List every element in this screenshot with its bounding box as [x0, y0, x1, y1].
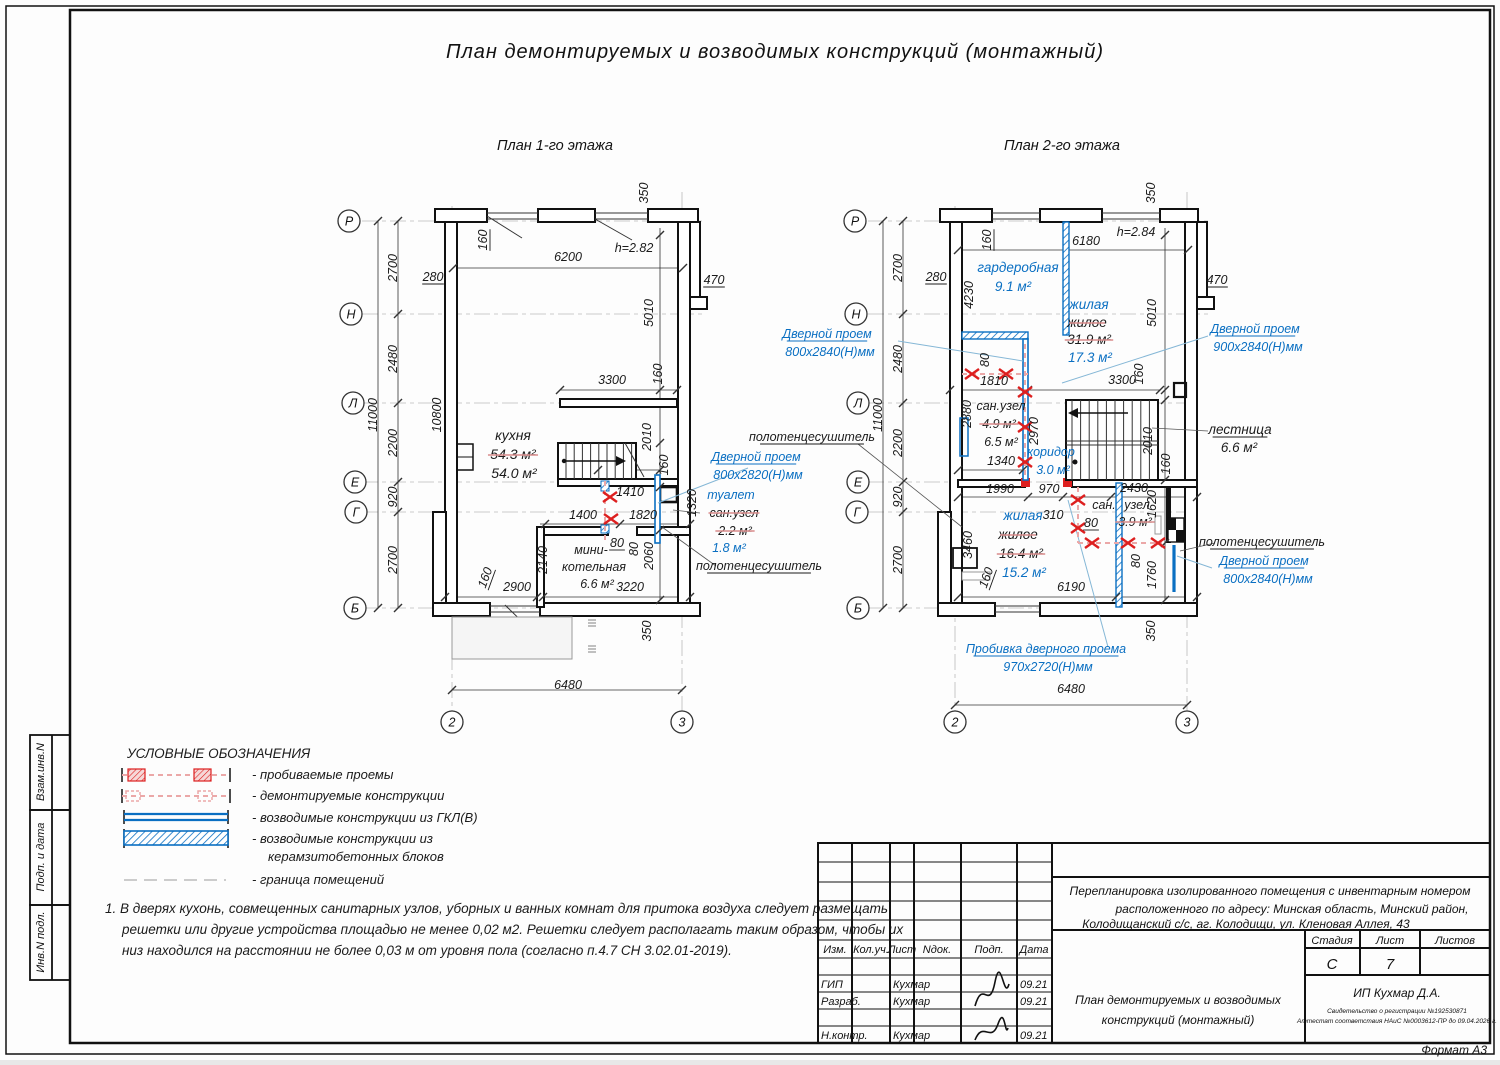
axis-label: Н: [346, 308, 356, 322]
tb-col: Изм.: [823, 944, 846, 956]
axis-label: Л: [348, 397, 358, 411]
axis-label: Л: [853, 397, 863, 411]
format-label: Формат А3: [1421, 1043, 1487, 1057]
legend: УСЛОВНЫЕ ОБОЗНАЧЕНИЯ - пробиваемые проем…: [122, 746, 478, 887]
sidebar-label: Инв.N подл.: [35, 911, 47, 972]
dim-label: 1820: [629, 508, 657, 522]
dim-label: 970: [1039, 482, 1060, 496]
tb-project: Перепланировка изолированного помещения …: [1070, 884, 1471, 898]
dim-label: 470: [704, 273, 725, 287]
dim-label: 2010: [640, 423, 654, 452]
dim-label: 11000: [871, 398, 885, 432]
plan2-subtitle: План 2-го этажа: [1004, 138, 1120, 154]
tb-cert: Свидетельство о регистрации №192530871: [1327, 1007, 1467, 1015]
tb-project: Колодищанский с/с, аг. Колодищи, ул. Кле…: [1082, 917, 1410, 931]
tb-name: Кухмар: [893, 979, 930, 991]
axis-label: Е: [351, 476, 360, 490]
dim-label: 2480: [891, 345, 905, 374]
annotation-label: 800x2820(Н)мм: [713, 468, 803, 482]
dim-label: 1410: [616, 485, 644, 499]
tb-name: Кухмар: [893, 996, 930, 1008]
note-line: решетки или другие устройства площадью н…: [121, 922, 904, 937]
dim-label: 160: [1159, 454, 1173, 475]
dim-label: полотенцесушитель: [1199, 535, 1325, 549]
dim-label: лестница: [1207, 422, 1272, 437]
axis-label: Р: [345, 215, 354, 229]
dim-label: 1810: [980, 374, 1008, 388]
dim-label: мини-: [574, 543, 608, 557]
dim-label: 160: [651, 364, 665, 385]
annotation-label: Дверной проем: [1208, 322, 1300, 336]
dim-label: 160: [1132, 364, 1146, 385]
tb-date: 09.21: [1020, 1030, 1048, 1042]
drawing-sheet: План демонтируемых и возводимых конструк…: [0, 0, 1500, 1060]
dim-label: 5010: [1145, 299, 1159, 327]
dim-label: 350: [640, 621, 654, 642]
dim-label: 1320: [685, 489, 699, 517]
dim-label: полотенцесушитель: [696, 559, 822, 573]
tb-col: Дата: [1017, 944, 1048, 956]
dim-label: 2430: [1119, 481, 1148, 495]
legend-symbol-gkl: [124, 810, 228, 824]
signature: [975, 1018, 1008, 1040]
dim-label: 3300: [598, 373, 626, 387]
axis-label: Г: [854, 506, 862, 520]
tb-role: Разраб.: [821, 996, 861, 1008]
dim-label: 2700: [891, 254, 905, 283]
dim-label: 2880: [960, 400, 974, 429]
dim-label: 6190: [1057, 580, 1085, 594]
dim-label: 6180: [1072, 234, 1100, 248]
dim-label: 920: [891, 487, 905, 508]
annotation-label: Дверной проем: [780, 327, 872, 341]
tb-role: ГИП: [821, 979, 843, 991]
dim-label: h=2.82: [615, 241, 654, 255]
axis-label: Н: [851, 308, 861, 322]
dim-label: 11000: [366, 398, 380, 432]
dim-label: 350: [1144, 183, 1158, 204]
legend-item-label-line2: керамзитобетонных блоков: [268, 849, 444, 864]
dim-label: 6.6 м²: [580, 577, 614, 591]
tb-cert: Аттестат соответствия НАиС №0003612-ПР д…: [1296, 1017, 1497, 1025]
tb-doc-title: План демонтируемых и возводимых: [1075, 993, 1282, 1007]
annotation-label: жилая: [1068, 297, 1108, 312]
tb-company: ИП Кухмар Д.А.: [1353, 986, 1441, 1000]
annotation-label: гардеробная: [977, 260, 1058, 275]
dim-label: 160: [657, 455, 671, 476]
annotation-label: 800x2840(Н)мм: [785, 345, 875, 359]
dim-label: 470: [1207, 273, 1228, 287]
dim-label: 2700: [386, 254, 400, 283]
note-line: 1. В дверях кухонь, совмещенных санитарн…: [105, 901, 888, 916]
tb-stage-label: Стадия: [1311, 935, 1352, 947]
dim-label: 160: [476, 230, 490, 251]
dim-label: 2140: [536, 546, 550, 575]
dim-label: 2480: [386, 345, 400, 374]
legend-symbol-demolished: [122, 789, 230, 803]
dim-label: 2970: [1027, 417, 1041, 446]
dim-label: 2200: [386, 429, 400, 458]
tb-col: Кол.уч.: [853, 944, 889, 956]
plan1-drawing: [362, 192, 748, 712]
annotation-label: 900x2840(Н)мм: [1213, 340, 1303, 354]
legend-heading: УСЛОВНЫЕ ОБОЗНАЧЕНИЯ: [126, 746, 311, 761]
title-block: Изм. Кол.уч. Лист Nдок. Подп. Дата ГИП К…: [818, 843, 1497, 1043]
dim-label: узел: [1123, 498, 1150, 512]
note-line: низ находился на расстоянии не более 0,0…: [122, 943, 732, 958]
tb-sheet-label: Лист: [1375, 935, 1404, 947]
tb-sheet-value: 7: [1386, 956, 1395, 973]
annotation-label: 9.1 м²: [995, 279, 1032, 294]
tb-doc-title: конструкций (монтажный): [1102, 1013, 1255, 1027]
tb-project: расположенного по адресу: Минская област…: [1115, 902, 1469, 916]
tb-date: 09.21: [1020, 996, 1048, 1008]
dim-label: 3220: [616, 580, 644, 594]
dim-label: 6480: [554, 678, 582, 692]
dim-label: 80: [1084, 516, 1098, 530]
sidebar-label: Взам.инв.N: [35, 743, 47, 801]
dim-label: 80: [1129, 554, 1143, 568]
axis-label: 2: [951, 716, 959, 730]
annotation-label: 800x2840(Н)мм: [1223, 572, 1313, 586]
dim-label: 160: [980, 230, 994, 251]
axis-label: Р: [851, 215, 860, 229]
dim-label: 2200: [891, 429, 905, 458]
annotation-label: жилая: [1002, 508, 1042, 523]
annotation-label: туалет: [707, 488, 754, 502]
tb-col: Nдок.: [923, 944, 951, 956]
dim-label: 80: [610, 536, 624, 550]
legend-item-label: - пробиваемые проемы: [252, 767, 394, 782]
dim-label: 280: [925, 270, 947, 284]
dim-label: 2700: [386, 546, 400, 575]
axis-label: 3: [1184, 716, 1191, 730]
dim-label: 5010: [642, 299, 656, 327]
tb-stage-value: С: [1327, 956, 1338, 973]
axis-label: Б: [351, 602, 359, 616]
dim-label: 6200: [554, 250, 582, 264]
dim-label: 4230: [962, 281, 976, 309]
dim-label: 80: [978, 353, 992, 367]
dim-label: 920: [386, 487, 400, 508]
legend-item-label: - демонтируемые конструкции: [252, 788, 444, 803]
dim-label: 2700: [891, 546, 905, 575]
drawing-canvas: План демонтируемых и возводимых конструк…: [0, 0, 1500, 1060]
dim-label: 6.6 м²: [1221, 440, 1258, 455]
legend-symbol-blocks: [124, 829, 228, 848]
annotation-label: 3.0 м²: [1036, 463, 1070, 477]
dim-label: 3460: [961, 531, 975, 559]
axis-label: Е: [854, 476, 863, 490]
annotation-label: Пробивка дверного проема: [966, 642, 1126, 656]
dim-label: сан.узел: [976, 399, 1025, 413]
dim-label: 310: [1043, 508, 1064, 522]
dim-label: h=2.84: [1117, 225, 1156, 239]
dim-label: 2010: [1141, 427, 1155, 456]
annotation-label: 15.2 м²: [1002, 565, 1046, 580]
dim-label: 10800: [430, 398, 444, 433]
annotation-label: 17.3 м²: [1068, 350, 1112, 365]
plan1-subtitle: План 1-го этажа: [497, 138, 613, 154]
axis-label: Г: [353, 506, 361, 520]
dim-label: 1990: [986, 482, 1014, 496]
legend-item-label: - граница помещений: [252, 872, 384, 887]
dim-label: 1340: [987, 454, 1015, 468]
dim-label: 280: [422, 270, 444, 284]
legend-item-label: - возводимые конструкции из: [252, 831, 433, 846]
axis-label: Б: [854, 602, 862, 616]
page-title: План демонтируемых и возводимых конструк…: [446, 41, 1104, 63]
sidebar-label: Подп. и дата: [35, 823, 47, 892]
dim-label: 2060: [642, 542, 656, 571]
annotation-label: коридор: [1027, 445, 1075, 459]
dim-label: кухня: [495, 427, 531, 443]
signature: [975, 972, 1009, 1006]
dim-label: котельная: [562, 560, 626, 574]
annotation-label: Дверной проем: [709, 450, 801, 464]
tb-col: Подп.: [974, 944, 1003, 956]
dim-label: 6480: [1057, 682, 1085, 696]
dim-label: 2900: [502, 580, 531, 594]
tb-name: Кухмар: [893, 1030, 930, 1042]
dim-label: 350: [1144, 621, 1158, 642]
tb-sheets-label: Листов: [1434, 935, 1475, 947]
annotation-label: 1.8 м²: [712, 541, 746, 555]
dim-label: 350: [637, 183, 651, 204]
axis-label: 3: [679, 716, 686, 730]
dim-label: сан.: [1092, 498, 1116, 512]
legend-symbol-punched-openings: [122, 768, 230, 782]
annotation-label: 970x2720(Н)мм: [1003, 660, 1093, 674]
dim-label: 54.0 м²: [491, 465, 538, 481]
dim-label: 54.3 м²: [490, 446, 537, 462]
dim-label: 1400: [569, 508, 597, 522]
notes: 1. В дверях кухонь, совмещенных санитарн…: [105, 901, 904, 958]
dim-label: 6.5 м²: [984, 435, 1018, 449]
tb-role: Н.контр.: [821, 1030, 868, 1042]
dim-label: 1760: [1145, 561, 1159, 589]
tb-date: 09.21: [1020, 979, 1048, 991]
dim-label: полотенцесушитель: [749, 430, 875, 444]
dim-label: 80: [627, 542, 641, 556]
tb-col: Лист: [887, 944, 916, 956]
axis-label: 2: [448, 716, 456, 730]
legend-item-label: - возводимые конструкции из ГКЛ(В): [252, 810, 478, 825]
annotation-label: Дверной проем: [1217, 554, 1309, 568]
